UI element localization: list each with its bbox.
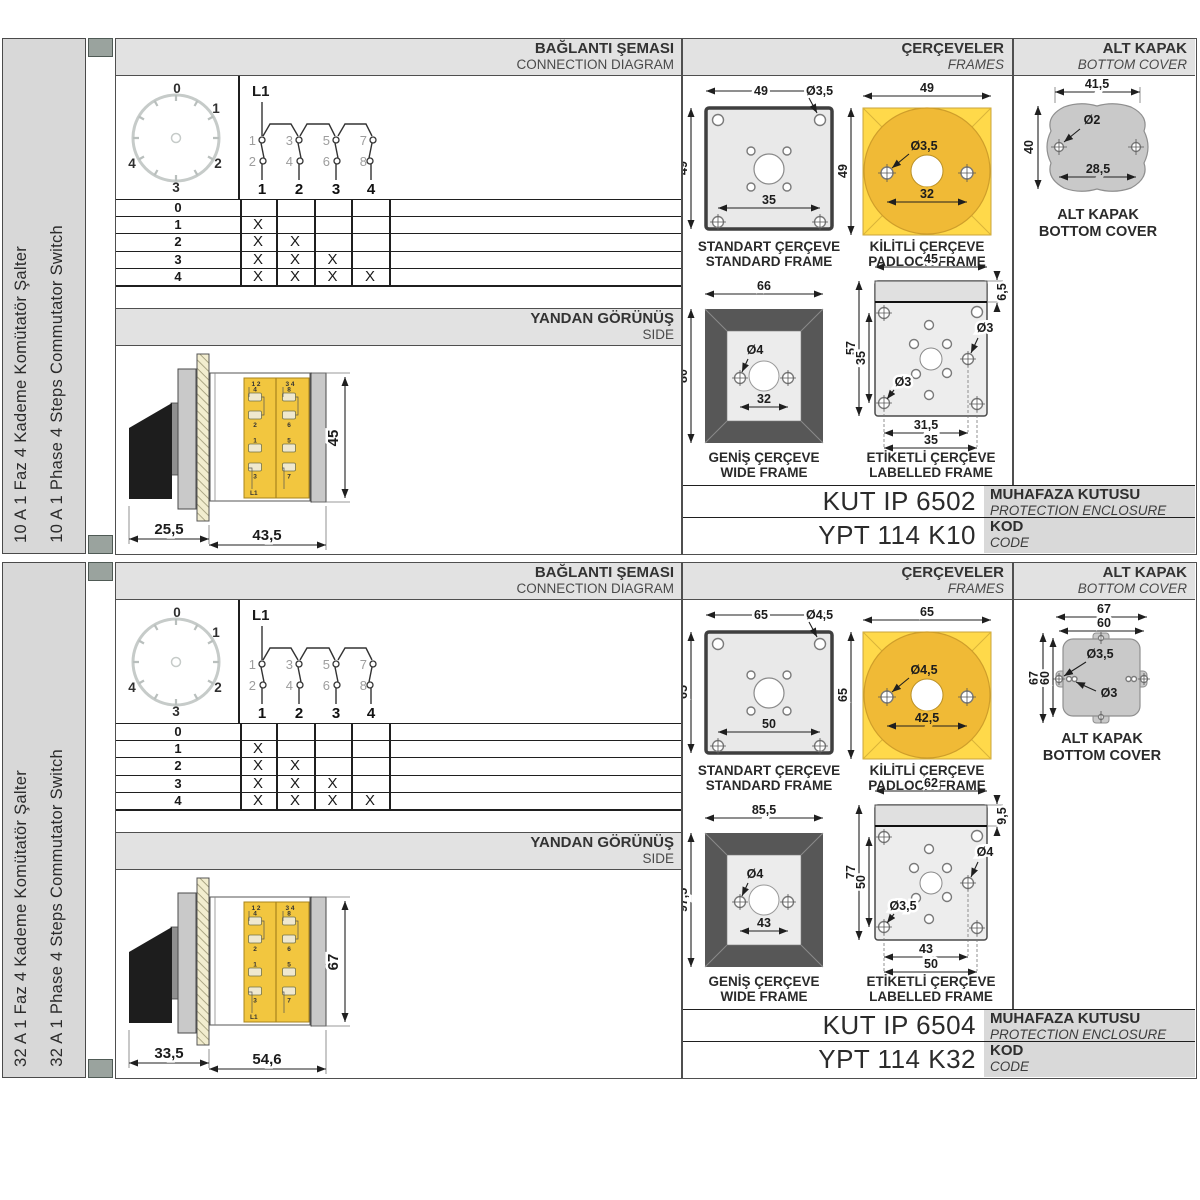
dim-lbl-strip: 9,5: [995, 807, 1009, 824]
header-frames: ÇERÇEVELER FRAMES: [681, 39, 1012, 76]
code-en: CODE: [990, 1059, 1195, 1074]
column-border: [681, 39, 683, 554]
code-tr: KOD: [990, 1043, 1195, 1059]
enclosure-tr: MUHAFAZA KUTUSU: [990, 487, 1195, 503]
contact-5: 5: [323, 657, 330, 672]
dim-cover-hole-inner: Ø3: [1101, 686, 1118, 700]
terminal-4: 4: [367, 181, 376, 198]
dial-label-3: 3: [172, 704, 180, 719]
side-view-en: SIDE: [116, 327, 674, 342]
terminal-3: 3: [332, 705, 340, 722]
contact-5: 5: [323, 133, 330, 148]
header-connection-en: CONNECTION DIAGRAM: [116, 581, 674, 596]
code-row: YPT 114 K32 KOD CODE: [681, 1041, 1195, 1077]
block-num: 2: [253, 946, 257, 953]
dim-lbl-strip: 6,5: [995, 283, 1009, 300]
dim-wide-width: 85,5: [752, 803, 776, 817]
header-connection-tr: BAĞLANTI ŞEMASI: [116, 565, 674, 581]
mark-cell: X: [276, 269, 314, 284]
table-row: 3 X X X: [116, 775, 682, 792]
side-view-tr: YANDAN GÖRÜNÜŞ: [116, 835, 674, 851]
block-num: 7: [287, 998, 291, 1005]
binding-strip-cap: [88, 1059, 113, 1078]
header-cover-tr: ALT KAPAK: [1012, 565, 1187, 581]
mounting-panel-hatched: [197, 878, 209, 1045]
table-row: 2 X X: [116, 233, 682, 250]
terminal-1: 1: [258, 181, 266, 198]
wide-frame-label-tr: GENİŞ ÇERÇEVE: [708, 450, 819, 465]
codes-block: KUT IP 6502 MUHAFAZA KUTUSU PROTECTION E…: [681, 485, 1195, 554]
wide-frame-drawing: Ø4 66 80 32 GENİŞ ÇERÇEVE WIDE FRAME: [681, 279, 823, 480]
contact-1: 1: [249, 657, 256, 672]
header-bottom-cover: ALT KAPAK BOTTOM COVER: [1012, 563, 1195, 600]
dial-label-1: 1: [212, 625, 220, 640]
binding-strip-cap: [88, 38, 113, 57]
frames-drawings: 65 Ø4,5 65 50 STANDART ÇERÇEVE STANDARD …: [681, 600, 1012, 1009]
header-connection-diagram: BAĞLANTI ŞEMASI CONNECTION DIAGRAM: [116, 39, 682, 76]
mark-cell: X: [240, 217, 276, 232]
dim-front-depth: 25,5: [154, 521, 183, 538]
labelled-frame-drawing: 62 9,5 77 50 Ø4 Ø3,5 43 50 ETİKETLİ ÇERÇ…: [844, 776, 1009, 1004]
dim-std-spacing: 35: [762, 193, 776, 207]
contact-4: 4: [286, 154, 293, 169]
block-num: 5: [287, 962, 291, 969]
contact-6: 6: [323, 678, 330, 693]
sidebar-title-english: 32 A 1 Phase 4 Steps Commutator Switch: [48, 749, 67, 1067]
row-label: 2: [116, 234, 240, 249]
bottom-cover-drawing: 67 60 67 60 Ø3,5 Ø3 ALT KAPAK BOTTOM COV…: [1012, 600, 1195, 1009]
standard-frame-label-tr: STANDART ÇERÇEVE: [698, 239, 840, 254]
row-label: 0: [116, 200, 240, 215]
table-border: [116, 809, 682, 811]
header-cover-en: BOTTOM COVER: [1012, 581, 1187, 596]
dim-pad-hole: Ø3,5: [910, 139, 937, 153]
code-desc: KOD CODE: [984, 1042, 1195, 1077]
mark-cell: X: [240, 776, 276, 791]
mark-cell: X: [276, 234, 314, 249]
bottom-cover-drawing: 41,5 40 Ø2 28,5 ALT KAPAK BOTTOM COVER: [1012, 76, 1195, 485]
line-l1-label: L1: [252, 607, 270, 624]
table-border: [276, 199, 278, 287]
header-connection-diagram: BAĞLANTI ŞEMASI CONNECTION DIAGRAM: [116, 563, 682, 600]
labelled-frame-label-tr: ETİKETLİ ÇERÇEVE: [866, 974, 995, 989]
enclosure-tr: MUHAFAZA KUTUSU: [990, 1011, 1195, 1027]
mark-cell: X: [314, 252, 351, 267]
block-num: 8: [287, 911, 291, 918]
dial-label-1: 1: [212, 101, 220, 116]
mark-cell: X: [276, 758, 314, 773]
contact-1: 1: [249, 133, 256, 148]
dim-wide-width: 66: [757, 279, 771, 293]
column-border: [1012, 39, 1014, 485]
switch-handle: [129, 927, 172, 1023]
row-label: 3: [116, 776, 240, 791]
block-feed-label: L1: [250, 490, 258, 497]
mark-cell: X: [351, 793, 389, 808]
codes-block: KUT IP 6504 MUHAFAZA KUTUSU PROTECTION E…: [681, 1009, 1195, 1078]
header-cover-en: BOTTOM COVER: [1012, 57, 1187, 72]
standard-frame-drawing: 49 Ø3,5 49 35 STANDART ÇERÇEVE STANDARD …: [681, 84, 840, 269]
block-num: 4: [253, 911, 257, 918]
block-num: 1: [253, 438, 257, 445]
enclosure-desc: MUHAFAZA KUTUSU PROTECTION ENCLOSURE: [984, 1010, 1195, 1041]
table-border: [314, 199, 316, 287]
standard-frame-label-tr: STANDART ÇERÇEVE: [698, 763, 840, 778]
dim-cover-inner-height: 60: [1038, 671, 1052, 685]
header-side-view: YANDAN GÖRÜNÜŞ SIDE: [116, 832, 682, 870]
table-row: 0: [116, 199, 682, 216]
terminal-2: 2: [295, 181, 303, 198]
terminal-4: 4: [367, 705, 376, 722]
header-connection-tr: BAĞLANTI ŞEMASI: [116, 41, 674, 57]
dim-cover-width: 41,5: [1085, 77, 1109, 91]
dim-pad-spacing: 32: [920, 187, 934, 201]
product-code: YPT 114 K10: [681, 518, 976, 552]
sidebar-10a: 10 A 1 Faz 4 Kademe Komütatör Şalter 10 …: [2, 38, 86, 554]
table-border: [389, 723, 391, 811]
dim-lbl-inner-height: 50: [854, 875, 868, 889]
block-feed-label: L1: [250, 1014, 258, 1021]
wide-frame-drawing: Ø4 85,5 97,5 43 GENİŞ ÇERÇEVE WIDE FRAME: [681, 803, 823, 1004]
contact-2: 2: [249, 154, 256, 169]
dim-pad-width: 49: [920, 81, 934, 95]
terminal-2: 2: [295, 705, 303, 722]
enclosure-row: KUT IP 6502 MUHAFAZA KUTUSU PROTECTION E…: [681, 486, 1195, 517]
code-tr: KOD: [990, 519, 1195, 535]
table-row: 3 X X X: [116, 251, 682, 268]
block-num: 3: [253, 474, 257, 481]
side-view-drawing: 1 2 3 4 4 2 1 3 8 6 5 7 L1 67 33,5 54,6: [116, 870, 682, 1079]
row-label: 3: [116, 252, 240, 267]
table-row: 1 X: [116, 740, 682, 757]
block-num: 8: [287, 387, 291, 394]
mark-cell: X: [314, 776, 351, 791]
product-code: YPT 114 K32: [681, 1042, 976, 1076]
dim-wide-spacing: 43: [757, 916, 771, 930]
table-border: [240, 723, 242, 811]
dim-cover-hole: Ø2: [1084, 113, 1101, 127]
enclosure-code: KUT IP 6502: [681, 486, 976, 516]
dim-pad-height: 65: [836, 688, 850, 702]
labelled-frame-drawing: 45 6,5 57 35 Ø3 Ø3 31,5 35 ETİKETLİ ÇERÇ…: [844, 252, 1009, 480]
padlock-frame-drawing: Ø3,5 49 49 32 KİLİTLİ ÇERÇEVE PADLOCK FR…: [836, 81, 991, 269]
mark-cell: X: [276, 252, 314, 267]
table-border: [240, 199, 242, 287]
dim-lbl-hole-right: Ø3: [977, 321, 994, 335]
dim-cover-height: 40: [1022, 140, 1036, 154]
dim-lbl-inner-height: 35: [854, 351, 868, 365]
dim-wide-hole: Ø4: [747, 343, 764, 357]
block-num: 3: [253, 998, 257, 1005]
table-border: [314, 723, 316, 811]
side-view-en: SIDE: [116, 851, 674, 866]
mark-cell: X: [240, 234, 276, 249]
switch-position-dial: 0 1 2 3 4: [116, 76, 238, 199]
block-num: 1: [253, 962, 257, 969]
dim-lbl-hole-left: Ø3,5: [889, 899, 916, 913]
contact-6: 6: [323, 154, 330, 169]
dial-label-2: 2: [214, 156, 222, 171]
wide-frame-label-en: WIDE FRAME: [721, 465, 808, 480]
dim-lbl-spacing-outer: 50: [924, 957, 938, 971]
dim-std-width: 49: [754, 84, 768, 98]
dim-pad-width: 65: [920, 605, 934, 619]
cover-label-en: BOTTOM COVER: [1043, 748, 1162, 764]
sidebar-title-english: 10 A 1 Phase 4 Steps Commutator Switch: [48, 225, 67, 543]
header-frames-tr: ÇERÇEVELER: [681, 565, 1004, 581]
mark-cell: X: [240, 758, 276, 773]
dim-wide-spacing: 32: [757, 392, 771, 406]
table-border: [351, 723, 353, 811]
table-row: 2 X X: [116, 757, 682, 774]
mark-cell: X: [240, 269, 276, 284]
dim-body-depth: 54,6: [252, 1051, 281, 1068]
mark-cell: X: [240, 741, 276, 756]
mark-cell: X: [314, 269, 351, 284]
frames-drawings: 49 Ø3,5 49 35 STANDART ÇERÇEVE STANDARD …: [681, 76, 1012, 485]
padlock-frame-drawing: Ø4,5 65 65 42,5 KİLİTLİ ÇERÇEVE PADLOCK …: [836, 605, 991, 793]
dim-std-spacing: 50: [762, 717, 776, 731]
terminal-3: 3: [332, 181, 340, 198]
dim-pad-height: 49: [836, 164, 850, 178]
table-row: 4 X X X X: [116, 792, 682, 809]
enclosure-code: KUT IP 6504: [681, 1010, 976, 1040]
sidebar-title-turkish: 32 A 1 Faz 4 Kademe Komütatör Şalter: [12, 770, 31, 1067]
header-frames-tr: ÇERÇEVELER: [681, 41, 1004, 57]
table-border: [116, 285, 682, 287]
block-num: 6: [287, 946, 291, 953]
dim-lbl-hole-left: Ø3: [895, 375, 912, 389]
contact-3: 3: [286, 657, 293, 672]
section-10a: 10 A 1 Faz 4 Kademe Komütatör Şalter 10 …: [0, 38, 1200, 555]
standard-frame-drawing: 65 Ø4,5 65 50 STANDART ÇERÇEVE STANDARD …: [681, 608, 840, 793]
code-row: YPT 114 K10 KOD CODE: [681, 517, 1195, 553]
dim-cover-outer-width: 67: [1097, 602, 1111, 616]
table-row: 0: [116, 723, 682, 740]
line-l1-label: L1: [252, 83, 270, 100]
switch-position-dial: 0 1 2 3 4: [116, 600, 238, 723]
dial-label-0: 0: [173, 81, 181, 96]
contact-8: 8: [360, 678, 367, 693]
sidebar-32a: 32 A 1 Faz 4 Kademe Komütatör Şalter 32 …: [2, 562, 86, 1078]
header-cover-tr: ALT KAPAK: [1012, 41, 1187, 57]
content-panel: BAĞLANTI ŞEMASI CONNECTION DIAGRAM ÇERÇE…: [115, 562, 1197, 1079]
cover-label-tr: ALT KAPAK: [1057, 207, 1139, 223]
code-en: CODE: [990, 535, 1195, 550]
sidebar-title-turkish: 10 A 1 Faz 4 Kademe Komütatör Şalter: [12, 246, 31, 543]
wide-frame-label-tr: GENİŞ ÇERÇEVE: [708, 974, 819, 989]
column-border: [1012, 563, 1014, 1009]
section-32a: 32 A 1 Faz 4 Kademe Komütatör Şalter 32 …: [0, 562, 1200, 1079]
binding-strip-cap: [88, 535, 113, 554]
dim-std-hole: Ø4,5: [806, 608, 833, 622]
dim-pad-spacing: 42,5: [915, 711, 939, 725]
dim-front-depth: 33,5: [154, 1045, 183, 1062]
standard-frame-label-en: STANDARD FRAME: [706, 254, 833, 269]
block-num: 4: [253, 387, 257, 394]
enclosure-desc: MUHAFAZA KUTUSU PROTECTION ENCLOSURE: [984, 486, 1195, 517]
table-row: 4 X X X X: [116, 268, 682, 285]
switch-handle: [129, 403, 172, 499]
connection-schematic: L1 1 3 5 7 2 4 6 8 1 2 3 4: [240, 600, 681, 723]
header-connection-en: CONNECTION DIAGRAM: [116, 57, 674, 72]
header-bottom-cover: ALT KAPAK BOTTOM COVER: [1012, 39, 1195, 76]
side-view-drawing: 1 2 3 4 4 2 1 3 8 6 5 7 L1 45 25,5 43,5: [116, 346, 682, 555]
contact-2: 2: [249, 678, 256, 693]
dim-lbl-spacing-outer: 35: [924, 433, 938, 447]
dim-std-hole: Ø3,5: [806, 84, 833, 98]
side-view-tr: YANDAN GÖRÜNÜŞ: [116, 311, 674, 327]
dim-lbl-width: 62: [924, 776, 938, 790]
header-frames: ÇERÇEVELER FRAMES: [681, 563, 1012, 600]
dial-label-3: 3: [172, 180, 180, 195]
block-num: 7: [287, 474, 291, 481]
contact-8: 8: [360, 154, 367, 169]
header-frames-en: FRAMES: [681, 581, 1004, 596]
block-num: 2: [253, 422, 257, 429]
mark-cell: X: [351, 269, 389, 284]
connection-schematic: L1 1 3 5 7 2 4 6 8 1 2 3 4: [240, 76, 681, 199]
contact-7: 7: [360, 657, 367, 672]
enclosure-en: PROTECTION ENCLOSURE: [990, 503, 1195, 518]
dim-wide-hole: Ø4: [747, 867, 764, 881]
cover-label-en: BOTTOM COVER: [1039, 224, 1158, 240]
row-label: 1: [116, 217, 240, 232]
dim-lbl-hole-right: Ø4: [977, 845, 994, 859]
labelled-frame-label-tr: ETİKETLİ ÇERÇEVE: [866, 450, 995, 465]
contact-3: 3: [286, 133, 293, 148]
content-panel: BAĞLANTI ŞEMASI CONNECTION DIAGRAM ÇERÇE…: [115, 38, 1197, 555]
dim-cover-hole-tab: Ø3,5: [1086, 647, 1113, 661]
table-border: [389, 199, 391, 287]
row-label: 0: [116, 724, 240, 739]
dim-pad-hole: Ø4,5: [910, 663, 937, 677]
dim-lbl-spacing-inner: 31,5: [914, 418, 938, 432]
block-num: 6: [287, 422, 291, 429]
cover-label-tr: ALT KAPAK: [1061, 731, 1143, 747]
mark-cell: X: [240, 252, 276, 267]
dim-lbl-spacing-inner: 43: [919, 942, 933, 956]
code-desc: KOD CODE: [984, 518, 1195, 553]
dim-lbl-width: 45: [924, 252, 938, 266]
dim-height: 45: [325, 430, 342, 447]
dim-std-width: 65: [754, 608, 768, 622]
row-label: 1: [116, 741, 240, 756]
binding-strip-cap: [88, 562, 113, 581]
labelled-frame-label-en: LABELLED FRAME: [869, 465, 993, 480]
row-label: 2: [116, 758, 240, 773]
contact-4: 4: [286, 678, 293, 693]
contact-7: 7: [360, 133, 367, 148]
enclosure-en: PROTECTION ENCLOSURE: [990, 1027, 1195, 1042]
wide-frame-label-en: WIDE FRAME: [721, 989, 808, 1004]
dial-label-4: 4: [128, 680, 136, 695]
enclosure-row: KUT IP 6504 MUHAFAZA KUTUSU PROTECTION E…: [681, 1010, 1195, 1041]
dial-label-2: 2: [214, 680, 222, 695]
terminal-1: 1: [258, 705, 266, 722]
labelled-frame-label-en: LABELLED FRAME: [869, 989, 993, 1004]
header-side-view: YANDAN GÖRÜNÜŞ SIDE: [116, 308, 682, 346]
table-border: [351, 199, 353, 287]
table-border: [276, 723, 278, 811]
dial-label-0: 0: [173, 605, 181, 620]
dim-cover-spacing: 28,5: [1086, 162, 1110, 176]
table-row: 1 X: [116, 216, 682, 233]
mounting-panel-hatched: [197, 354, 209, 521]
row-label: 4: [116, 793, 240, 808]
mark-cell: X: [240, 793, 276, 808]
block-num: 5: [287, 438, 291, 445]
dial-label-4: 4: [128, 156, 136, 171]
dim-body-depth: 43,5: [252, 527, 281, 544]
mark-cell: X: [276, 793, 314, 808]
header-frames-en: FRAMES: [681, 57, 1004, 72]
dim-height: 67: [325, 954, 342, 971]
column-border: [681, 563, 683, 1078]
mark-cell: X: [276, 776, 314, 791]
dim-cover-inner-width: 60: [1097, 616, 1111, 630]
standard-frame-label-en: STANDARD FRAME: [706, 778, 833, 793]
row-label: 4: [116, 269, 240, 284]
mark-cell: X: [314, 793, 351, 808]
